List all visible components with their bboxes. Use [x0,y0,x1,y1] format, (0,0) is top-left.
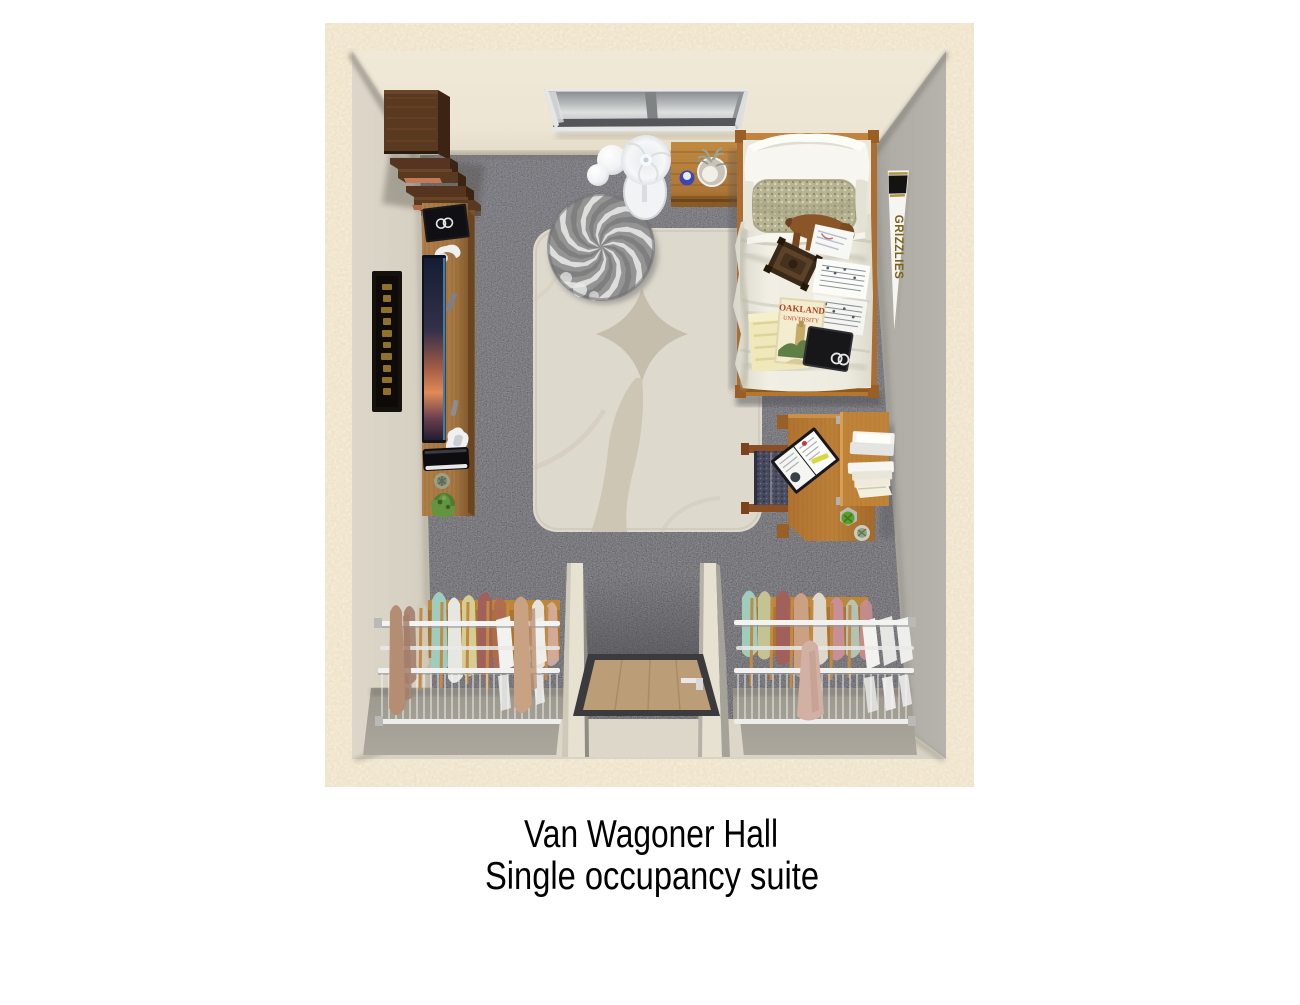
svg-text:Van Wagoner Hall: Van Wagoner Hall [524,813,778,856]
svg-text:GRIZZLIES: GRIZZLIES [892,215,904,280]
svg-text:Single occupancy suite: Single occupancy suite [485,855,819,898]
